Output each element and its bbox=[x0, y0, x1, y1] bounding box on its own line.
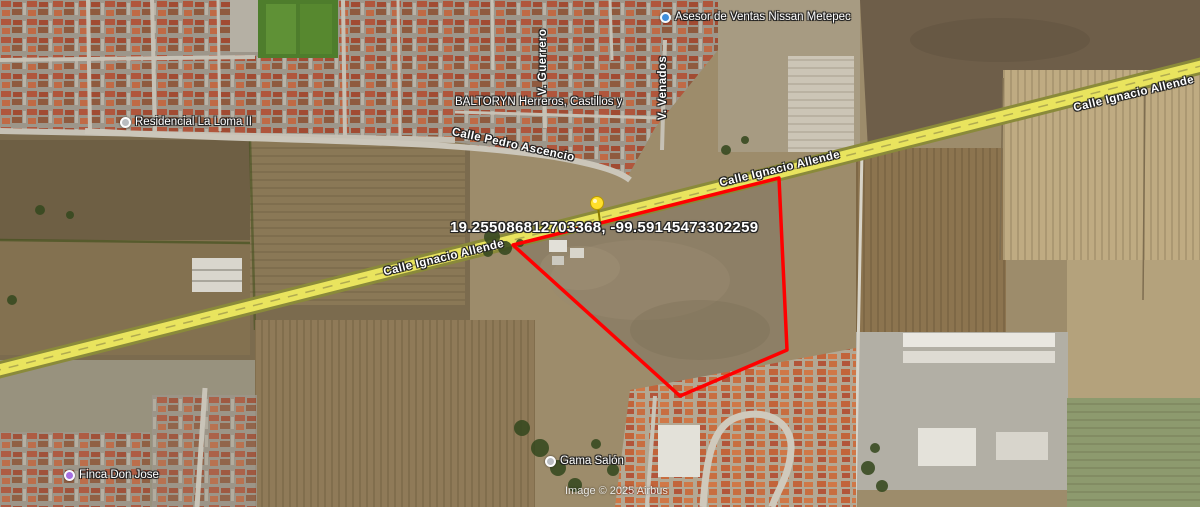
poi-baltoryn[interactable]: BALTORYN Herreros, Castillos y bbox=[455, 96, 622, 108]
street-label-v-guerrero: V. Guerrero bbox=[537, 22, 549, 102]
poi-label: Gama Salón bbox=[560, 455, 624, 467]
satellite-map-canvas[interactable]: 19.255086812703368, -99.59145473302259 C… bbox=[0, 0, 1200, 507]
poi-residencial-la-loma[interactable]: Residencial La Loma II bbox=[120, 116, 252, 128]
purple-place-dot-icon bbox=[64, 470, 75, 481]
poi-label: BALTORYN Herreros, Castillos y bbox=[455, 96, 622, 108]
poi-finca-don-jose[interactable]: Finca Don Jose bbox=[64, 469, 159, 481]
blue-place-dot-icon bbox=[660, 12, 671, 23]
poi-label: Asesor de Ventas Nissan Metepec bbox=[675, 11, 851, 23]
poi-label: Residencial La Loma II bbox=[135, 116, 252, 128]
grey-place-dot-icon bbox=[120, 117, 131, 128]
poi-gama-salon[interactable]: Gama Salón bbox=[545, 455, 624, 467]
street-label-v-venados: V. Venados bbox=[657, 48, 669, 128]
poi-label: Finca Don Jose bbox=[79, 469, 159, 481]
grey-place-dot-icon bbox=[545, 456, 556, 467]
satellite-imagery bbox=[0, 0, 1200, 507]
coordinates-label: 19.255086812703368, -99.59145473302259 bbox=[450, 219, 750, 236]
imagery-attribution: Image © 2025 Airbus bbox=[565, 485, 668, 497]
poi-nissan-metepec[interactable]: Asesor de Ventas Nissan Metepec bbox=[660, 11, 851, 23]
